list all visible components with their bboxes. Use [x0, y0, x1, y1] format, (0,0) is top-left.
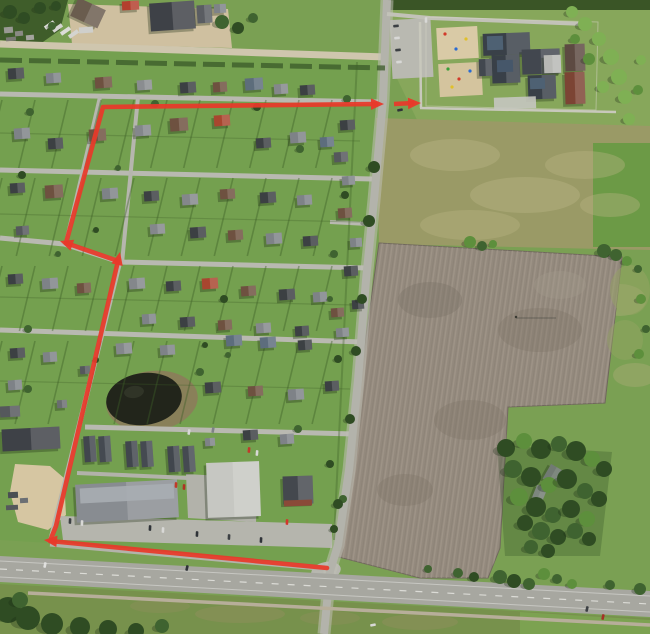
tree — [196, 368, 204, 376]
house — [7, 182, 25, 196]
house-roof-lit-side — [143, 124, 152, 136]
house-roof-lit-side — [220, 4, 226, 13]
house — [331, 152, 348, 166]
house-roof-lit-side — [274, 232, 283, 244]
house-roof-lit-side — [235, 229, 243, 239]
house-roof-lit-side — [130, 1, 139, 10]
house — [300, 235, 318, 249]
car — [396, 60, 402, 63]
house-roof-lit-side — [30, 426, 60, 449]
house-roof-lit-side — [281, 84, 289, 94]
tree — [551, 436, 567, 452]
car — [228, 534, 231, 540]
house-roof-lit-side — [268, 336, 277, 348]
car — [395, 48, 401, 51]
tree — [330, 525, 338, 533]
car — [81, 520, 84, 526]
house-roof-lit-side — [348, 176, 355, 185]
tree — [469, 572, 479, 582]
house — [287, 131, 306, 146]
tree — [634, 583, 646, 595]
house-roof-lit-side — [173, 280, 181, 290]
ellipse — [545, 151, 625, 179]
house — [204, 461, 261, 520]
house — [194, 4, 213, 26]
house-roof-lit-side — [149, 314, 157, 324]
house-roof-lit-side — [198, 226, 207, 238]
house-roof-lit-side — [15, 273, 23, 283]
house — [177, 81, 196, 96]
tree — [591, 491, 607, 507]
house — [187, 226, 206, 241]
tree — [357, 294, 367, 304]
house-roof-lit-side — [302, 326, 310, 336]
house — [310, 292, 327, 306]
house — [43, 72, 61, 86]
house — [257, 191, 276, 206]
house — [5, 67, 24, 82]
house — [123, 441, 139, 470]
tree — [489, 240, 497, 248]
aerial-map — [0, 0, 650, 634]
house — [245, 385, 263, 399]
tree — [510, 488, 528, 506]
house — [292, 326, 309, 340]
tree — [611, 69, 627, 85]
tree — [583, 53, 595, 65]
house — [74, 283, 91, 297]
car — [69, 518, 72, 524]
tree — [26, 108, 34, 116]
house-roof-lit-side — [84, 283, 92, 293]
tree — [566, 6, 578, 18]
tree — [550, 529, 566, 545]
house — [81, 436, 97, 465]
tree — [597, 81, 609, 93]
house — [476, 59, 492, 79]
house-roof-lit-side — [287, 434, 295, 444]
house — [179, 193, 198, 208]
house — [541, 55, 561, 76]
tree — [115, 165, 121, 171]
school-sand-playground — [436, 26, 479, 60]
tree — [453, 568, 463, 578]
tree — [504, 460, 522, 478]
tree — [24, 325, 32, 333]
house-roof-lit-side — [144, 79, 152, 89]
play-equipment — [450, 85, 453, 88]
house — [335, 208, 352, 222]
ellipse — [420, 210, 520, 240]
car — [393, 24, 399, 27]
house — [317, 137, 334, 151]
house — [0, 405, 20, 420]
house — [253, 322, 271, 336]
car — [394, 36, 400, 39]
tree — [517, 515, 533, 531]
ellipse — [377, 474, 433, 506]
house — [0, 426, 61, 454]
school-court — [494, 96, 536, 109]
tree — [345, 414, 355, 424]
play-equipment — [468, 69, 471, 72]
tree — [579, 511, 595, 527]
tree — [603, 49, 619, 65]
car — [183, 484, 186, 490]
tree — [326, 460, 334, 468]
house-roof-lit-side — [296, 388, 305, 400]
house — [271, 84, 288, 98]
tree — [618, 90, 632, 104]
house — [257, 336, 276, 351]
tree — [524, 540, 538, 554]
house-roof-lit-side — [55, 137, 63, 148]
tree — [24, 385, 32, 393]
house-roof-lit-side — [22, 226, 29, 235]
house — [242, 77, 263, 93]
tree — [636, 294, 646, 304]
house-roof-lit-side — [204, 4, 213, 22]
house-roof-lit-side — [210, 438, 216, 446]
tree — [521, 467, 541, 487]
tree — [18, 12, 30, 24]
excavator — [8, 492, 18, 499]
pub-red-wall — [284, 500, 312, 507]
car — [196, 531, 199, 537]
tree — [526, 497, 546, 517]
house-roof-lit-side — [137, 277, 146, 289]
house — [39, 277, 58, 292]
house-roof-lit-side — [54, 184, 64, 198]
tree — [570, 34, 580, 44]
tree — [578, 17, 592, 31]
tree — [294, 425, 302, 433]
house — [165, 446, 181, 475]
house — [99, 187, 118, 202]
house — [92, 76, 112, 91]
house — [253, 137, 271, 151]
tree — [622, 256, 632, 266]
tree — [538, 568, 550, 580]
farm-clutter — [4, 27, 13, 34]
tree — [523, 578, 535, 590]
ellipse — [610, 265, 650, 315]
house — [225, 229, 243, 243]
house-roof-lit-side — [85, 366, 91, 374]
house-roof-lit-side — [167, 344, 175, 354]
house — [238, 285, 256, 299]
house-roof-lit-side — [263, 322, 271, 332]
tree — [48, 22, 56, 30]
house — [294, 194, 312, 208]
house — [42, 184, 64, 201]
tree — [55, 251, 61, 257]
house — [5, 380, 22, 394]
tree — [155, 619, 169, 633]
house — [322, 381, 339, 395]
tree — [541, 544, 555, 558]
house-roof-lit-side — [250, 429, 258, 439]
house-roof-lit-side — [10, 405, 21, 417]
house-roof-lit-side — [179, 117, 189, 131]
house-roof-lit-side — [356, 238, 363, 247]
house — [119, 1, 139, 14]
tree — [516, 433, 532, 449]
tree — [51, 1, 61, 11]
tree — [225, 352, 231, 358]
house — [297, 84, 315, 98]
tree — [605, 580, 615, 590]
house — [180, 446, 196, 475]
car — [260, 537, 263, 543]
house-roof-lit-side — [53, 72, 61, 82]
house-roof-lit-side — [222, 114, 231, 126]
house-roof-lit-side — [310, 235, 318, 245]
house — [223, 334, 242, 349]
machinery — [6, 505, 18, 511]
house-roof-lit-side — [17, 182, 25, 192]
tree — [623, 113, 635, 125]
tree — [341, 191, 349, 199]
house — [132, 124, 151, 139]
solar-panels — [530, 78, 545, 90]
tree — [577, 483, 593, 499]
house — [157, 344, 175, 358]
tree — [532, 522, 550, 540]
tree — [232, 22, 244, 34]
solar-panels — [497, 60, 513, 73]
tree — [636, 55, 646, 65]
tree — [477, 241, 487, 251]
house-roof-lit-side — [210, 277, 219, 289]
tree — [296, 145, 304, 153]
house-roof-lit-side — [248, 285, 256, 295]
house-roof-lit-side — [15, 380, 23, 390]
tree — [368, 161, 380, 173]
car — [162, 527, 165, 533]
house-roof-lit-side — [345, 208, 353, 218]
school-side-path — [420, 22, 421, 108]
house-roof-lit-side — [351, 266, 359, 276]
ellipse — [434, 400, 506, 440]
house-roof-lit-side — [17, 347, 25, 357]
play-equipment — [457, 77, 460, 80]
house — [211, 114, 230, 129]
tree — [248, 13, 258, 23]
house — [276, 288, 295, 303]
house-roof-lit-side — [347, 119, 355, 129]
ellipse — [470, 177, 580, 213]
tree — [545, 507, 561, 523]
house-roof-lit-side — [255, 385, 263, 395]
tree — [363, 215, 375, 227]
house-roof-lit-side — [305, 340, 313, 350]
play-equipment — [446, 67, 449, 70]
house — [215, 320, 232, 334]
car — [255, 450, 258, 456]
farm-clutter — [15, 31, 23, 37]
tree — [215, 15, 229, 29]
tree — [582, 532, 596, 546]
tree — [330, 250, 338, 258]
house — [147, 223, 165, 237]
tree — [557, 469, 577, 489]
tree — [220, 295, 228, 303]
house-roof-lit-side — [103, 76, 112, 88]
play-equipment — [454, 47, 457, 50]
house-roof-lit-side — [190, 193, 199, 205]
house-roof-lit-side — [22, 127, 31, 139]
car — [149, 525, 152, 531]
tree — [18, 171, 26, 179]
farm-clutter — [26, 35, 34, 41]
house — [163, 280, 181, 294]
tree — [351, 346, 361, 356]
house-roof-lit-side — [151, 190, 159, 200]
ellipse — [534, 271, 586, 299]
house — [199, 277, 218, 292]
house — [177, 316, 195, 330]
car — [425, 17, 428, 23]
house-roof-lit-side — [268, 191, 277, 203]
tree — [634, 265, 642, 273]
house — [285, 388, 304, 403]
tree — [343, 95, 351, 103]
tree — [633, 85, 643, 95]
house — [147, 0, 197, 34]
tree — [12, 592, 28, 608]
house — [11, 127, 30, 142]
house-roof-lit-side — [220, 82, 228, 92]
house-roof-lit-side — [187, 316, 195, 326]
house-roof-lit-side — [337, 308, 344, 317]
house-roof-lit-side — [16, 67, 25, 79]
tree — [610, 249, 622, 261]
house-roof-lit-side — [50, 352, 58, 362]
tree — [634, 349, 644, 359]
tree — [642, 325, 650, 333]
house — [45, 137, 63, 152]
house-roof-lit-side — [298, 131, 307, 143]
house-roof-lit-side — [304, 194, 312, 204]
tree — [566, 441, 586, 461]
tree — [41, 613, 63, 634]
house — [138, 441, 154, 470]
house-roof-lit-side — [110, 187, 119, 199]
house-roof-lit-side — [341, 152, 349, 162]
house-roof-lit-side — [157, 223, 165, 233]
power-pole — [515, 316, 517, 318]
house-roof-lit-side — [234, 334, 243, 346]
house-roof-lit-side — [50, 277, 59, 289]
tree — [3, 5, 17, 19]
house-roof-lit-side — [233, 461, 261, 517]
farm-trailer — [79, 27, 93, 34]
tree — [464, 236, 476, 248]
house — [139, 314, 156, 328]
house — [126, 277, 145, 292]
ellipse — [398, 282, 462, 318]
house — [134, 79, 152, 93]
tree — [34, 2, 46, 14]
house — [295, 340, 312, 354]
house — [167, 117, 189, 134]
house-roof-lit-side — [327, 137, 335, 147]
ellipse — [410, 139, 500, 171]
house-roof-lit-side — [342, 328, 349, 337]
aerial-screenshot — [0, 0, 650, 634]
house — [263, 232, 282, 247]
tree — [562, 500, 580, 518]
house-roof-lit-side — [574, 72, 585, 104]
house — [7, 347, 25, 361]
house-roof-lit-side — [485, 59, 492, 76]
house — [96, 436, 112, 465]
house-roof-lit-side — [552, 55, 561, 73]
house-roof-lit-side — [124, 342, 133, 354]
tree — [334, 355, 342, 363]
play-equipment — [464, 37, 467, 40]
house — [562, 72, 586, 107]
tree — [424, 565, 432, 573]
house — [40, 352, 57, 366]
tree — [596, 461, 612, 477]
solar-panels — [487, 36, 503, 51]
car — [175, 482, 178, 488]
house-roof-lit-side — [188, 81, 197, 93]
tree — [497, 439, 515, 457]
house-roof-lit-side — [225, 320, 233, 330]
tree — [567, 523, 583, 539]
play-equipment — [443, 32, 446, 35]
house-roof-lit-side — [332, 381, 340, 391]
tree — [202, 342, 208, 348]
house — [337, 119, 355, 133]
house-roof-lit-side — [307, 84, 315, 94]
house — [277, 434, 294, 448]
house — [210, 82, 227, 96]
house-roof-lit-side — [287, 288, 296, 300]
ellipse — [195, 605, 285, 623]
house-roof-lit-side — [227, 188, 235, 198]
house-roof-lit-side — [172, 0, 196, 30]
car — [286, 519, 289, 525]
ellipse — [382, 614, 458, 630]
tree — [531, 439, 551, 459]
house-roof-lit-side — [263, 137, 271, 147]
ellipse — [580, 193, 640, 217]
house — [141, 190, 159, 204]
house — [240, 429, 258, 443]
tree — [93, 227, 99, 233]
tree — [567, 579, 577, 589]
ellipse — [498, 308, 582, 352]
house — [5, 273, 23, 287]
tree — [507, 574, 521, 588]
house — [113, 342, 132, 357]
car — [247, 447, 250, 453]
house-roof-lit-side — [254, 77, 264, 90]
tree — [327, 296, 333, 302]
house — [217, 188, 235, 202]
map-root — [0, 0, 650, 634]
tree — [592, 32, 606, 46]
tree — [333, 499, 343, 509]
house-roof-lit-side — [62, 400, 68, 408]
machinery — [20, 498, 28, 503]
house — [341, 266, 358, 280]
house — [202, 381, 221, 396]
